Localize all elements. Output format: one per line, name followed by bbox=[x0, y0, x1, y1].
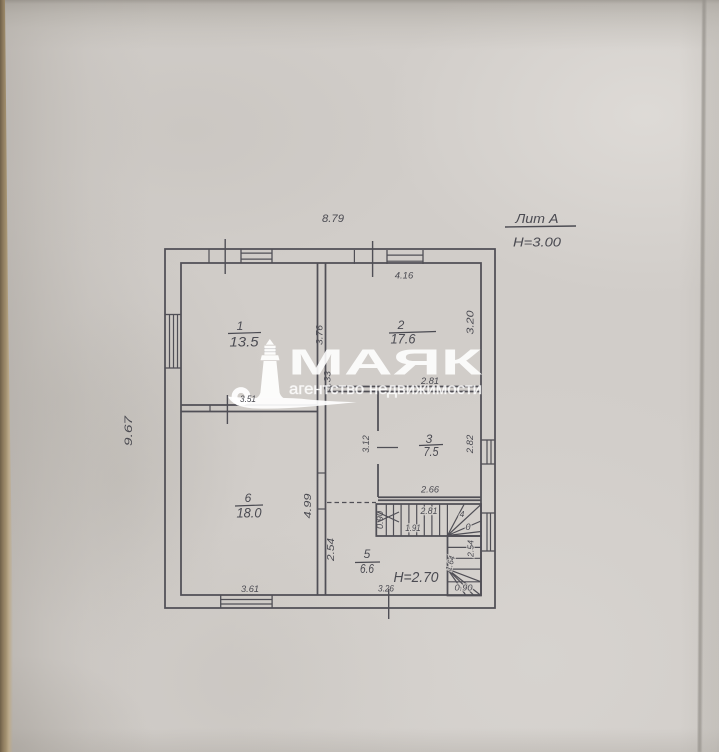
svg-text:3.51: 3.51 bbox=[240, 394, 256, 404]
svg-text:3.20: 3.20 bbox=[466, 310, 477, 335]
svg-text:2.81: 2.81 bbox=[420, 506, 438, 516]
svg-text:0: 0 bbox=[465, 522, 470, 532]
svg-text:0.90: 0.90 bbox=[455, 583, 473, 593]
svg-text:2: 2 bbox=[397, 318, 405, 332]
svg-text:18.0: 18.0 bbox=[237, 506, 262, 521]
svg-text:2.54: 2.54 bbox=[466, 540, 476, 558]
svg-text:5: 5 bbox=[364, 547, 371, 561]
svg-text:4.16: 4.16 bbox=[395, 271, 414, 282]
svg-text:7.5: 7.5 bbox=[424, 445, 439, 459]
svg-text:агентство недвижимости: агентство недвижимости bbox=[289, 381, 482, 398]
svg-text:6.6: 6.6 bbox=[360, 562, 374, 576]
svg-text:1.91: 1.91 bbox=[405, 523, 421, 533]
svg-text:0.90: 0.90 bbox=[375, 511, 385, 529]
svg-text:2.66: 2.66 bbox=[420, 485, 440, 496]
svg-text:МАЯК: МАЯК bbox=[288, 342, 484, 383]
svg-text:3.12: 3.12 bbox=[361, 435, 372, 453]
svg-text:13.5: 13.5 bbox=[230, 335, 260, 350]
svg-text:8.79: 8.79 bbox=[322, 213, 344, 225]
svg-text:2.81: 2.81 bbox=[420, 376, 439, 387]
svg-text:4: 4 bbox=[460, 509, 465, 519]
svg-text:2.82: 2.82 bbox=[465, 434, 476, 454]
svg-text:3.26: 3.26 bbox=[378, 584, 395, 595]
svg-text:3.61: 3.61 bbox=[241, 584, 259, 595]
svg-text:Лит А: Лит А bbox=[514, 211, 558, 226]
svg-text:2.54: 2.54 bbox=[326, 537, 337, 562]
svg-text:1: 1 bbox=[237, 319, 244, 333]
svg-text:3.76: 3.76 bbox=[315, 324, 326, 345]
svg-text:17.6: 17.6 bbox=[391, 332, 416, 347]
svg-text:Н=3.00: Н=3.00 bbox=[513, 236, 561, 250]
svg-text:3: 3 bbox=[426, 432, 433, 446]
svg-text:Н=2.70: Н=2.70 bbox=[394, 569, 440, 586]
svg-text:9.67: 9.67 bbox=[123, 415, 135, 446]
svg-text:4.99: 4.99 bbox=[303, 493, 314, 519]
svg-text:6: 6 bbox=[245, 491, 252, 505]
